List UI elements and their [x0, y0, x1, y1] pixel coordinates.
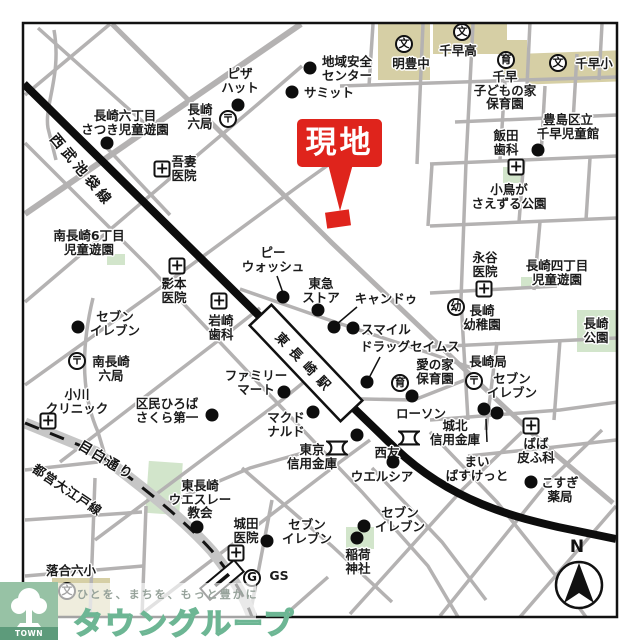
school-icon: 文 [453, 23, 471, 41]
chihaya-kodomo-hoikuen-label: 千早子どもの家保育園 [474, 70, 537, 111]
nagasaki6-satsuki-park-dot [101, 137, 114, 150]
nursery-icon: 育 [391, 374, 409, 392]
hospital-icon: + [508, 159, 525, 176]
chiiki-anzen-center-label: 地域安全センター [322, 55, 372, 82]
kindergarten-icon: 幼 [447, 298, 465, 316]
tree-icon [0, 582, 58, 627]
school-icon: 文 [549, 54, 567, 72]
seven-eleven-south-label: セブンイレブン [282, 518, 332, 545]
wesley-church-dot [191, 521, 204, 534]
bank-icon [398, 431, 420, 446]
seven-eleven-east-dot [478, 403, 491, 416]
landmark-labels-layer: 地域安全センターサミットピザハット明豊中文千早高文千早子どもの家保育園育千早小文… [0, 0, 640, 640]
nagasaki-6-post-label: 長崎六局 [187, 103, 212, 130]
seven-eleven-west-label: セブンイレブン [90, 310, 140, 337]
tokyu-store-dot [312, 304, 325, 317]
post-icon: 〒 [219, 110, 237, 128]
toshima-chihaya-jidokan-label: 豊島区立千早児童館 [537, 113, 600, 140]
azuma-clinic-label: 吾妻医院 [171, 155, 196, 182]
kumin-hiroba-sakura-dot [206, 409, 219, 422]
johoku-shinkin-bank-label: 城北信用金庫 [430, 419, 480, 446]
summit-dot [286, 86, 299, 99]
nagasaki-post-label: 長崎局 [469, 355, 507, 369]
meiho-junior-high-label: 明豊中 [392, 57, 430, 71]
nagasaki6-satsuki-park-label: 長崎六丁目さつき児童遊園 [81, 109, 169, 136]
site-marker: 現地 [297, 119, 382, 167]
inari-shrine-label: 稲荷神社 [345, 548, 370, 575]
welcia-label: ウエルシア [351, 470, 414, 484]
logo-brand: タウングループ [73, 599, 295, 640]
family-mart-dot [278, 386, 291, 399]
nagaya-clinic-label: 永谷医院 [472, 251, 497, 278]
ogawa-clinic-label: 小川クリニック [46, 388, 109, 415]
ochiai-roku-elementary-label: 落合六小 [46, 564, 96, 578]
seven-eleven-east-label: セブンイレブン [487, 372, 537, 399]
hospital-icon: + [228, 545, 245, 562]
seven-eleven-east-dot [491, 407, 504, 420]
gs-station-label: GS [269, 569, 288, 583]
map-canvas: 地域安全センターサミットピザハット明豊中文千早高文千早子どもの家保育園育千早小文… [0, 0, 640, 640]
mcdonalds-label: マクドナルド [267, 411, 305, 438]
post-icon: 〒 [465, 372, 483, 390]
bank-icon [326, 441, 348, 456]
seven-eleven-west-dot [72, 321, 85, 334]
pea-wash-dot [277, 291, 290, 304]
chihaya-high-label: 千早高 [439, 44, 477, 58]
nursery-icon: 育 [497, 51, 515, 69]
hospital-icon: + [211, 293, 228, 310]
tokyu-store-label: 東急ストア [302, 277, 340, 304]
kotori-park-label: 小鳥がさえずる公園 [471, 183, 546, 210]
post-icon: 〒 [68, 352, 86, 370]
kosugi-pharmacy-label: こすぎ薬局 [541, 476, 578, 503]
pizza-hut-label: ピザハット [221, 67, 259, 94]
kosugi-pharmacy-dot [525, 476, 538, 489]
hospital-icon: + [40, 413, 57, 430]
north-label: N [570, 537, 584, 557]
wesley-church-label: 東長崎ウエスレー教会 [169, 479, 232, 520]
chihaya-elementary-label: 千早小 [575, 57, 613, 71]
drug-seims-label: ドラッグセイムス [360, 340, 460, 354]
iida-dental-label: 飯田歯科 [493, 129, 518, 156]
seven-eleven-center-label: セブンイレブン [375, 506, 425, 533]
inari-shrine-dot [351, 532, 364, 545]
kagemoto-clinic-label: 影本医院 [161, 277, 186, 304]
smile-dot [347, 322, 360, 335]
seiyu-dot [351, 429, 364, 442]
shirota-clinic-label: 城田医院 [233, 517, 258, 544]
drug-seims-dot [361, 376, 374, 389]
summit-label: サミット [304, 86, 354, 100]
cando-label: キャンドゥ [355, 292, 418, 306]
pizza-hut-dot [232, 99, 245, 112]
minami-nagasaki6-park-label: 南長崎6丁目児童遊園 [53, 229, 124, 256]
ai-no-ie-hoikuen-label: 愛の家保育園 [416, 358, 454, 385]
logo-square: TOWN GROUP [0, 582, 58, 640]
hospital-icon: + [154, 161, 171, 178]
iwasaki-dental-label: 岩崎歯科 [208, 314, 233, 341]
smile-label: スマイル [361, 323, 411, 337]
hospital-icon: + [476, 281, 493, 298]
chiiki-anzen-center-dot [304, 62, 317, 75]
kumin-hiroba-sakura-label: 区民ひろばさくら第一 [136, 397, 199, 424]
pea-wash-label: ピーウォッシュ [242, 246, 305, 273]
lawson-dot [406, 390, 419, 403]
school-icon: 文 [395, 35, 413, 53]
my-basket-label: まいばすけっと [446, 455, 509, 482]
hospital-icon: + [169, 258, 186, 275]
nagasaki4-jido-park-label: 長崎四丁目児童遊園 [526, 259, 589, 286]
logo-group-name: TOWN GROUP [0, 627, 58, 640]
nagasaki-park-label: 長崎公園 [583, 317, 608, 344]
toshima-chihaya-jidokan-dot [532, 144, 545, 157]
minami-nagasaki-6-post-label: 南長崎六局 [92, 355, 130, 382]
baba-hifuka-label: ばば皮ふ科 [517, 437, 555, 464]
seven-eleven-center-dot [358, 520, 371, 533]
seven-eleven-south-dot [261, 535, 274, 548]
welcia-dot [387, 456, 400, 469]
hospital-icon: + [523, 418, 540, 435]
mcdonalds-dot [307, 406, 320, 419]
cando-dot [328, 321, 341, 334]
nagasaki-kindergarten-label: 長崎幼稚園 [463, 304, 501, 331]
